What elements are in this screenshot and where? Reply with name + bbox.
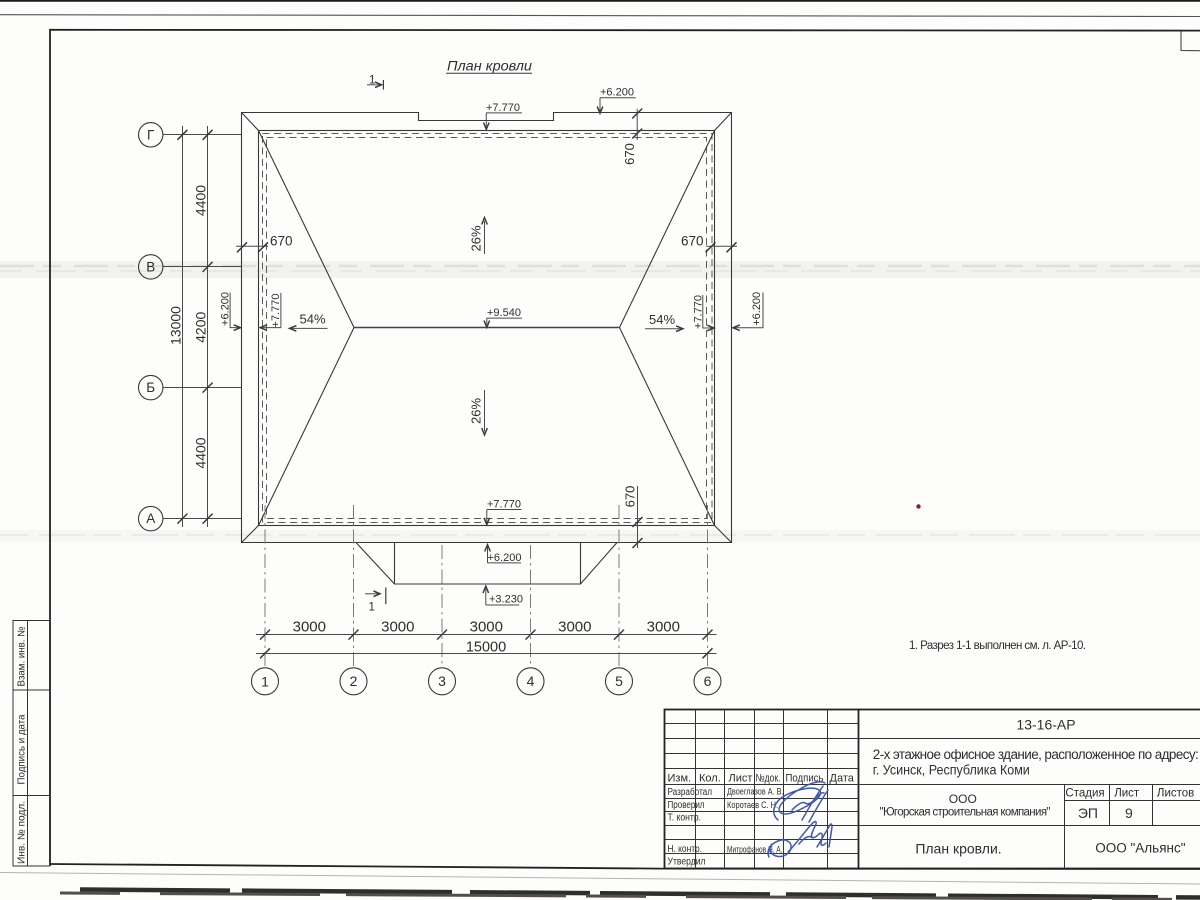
svg-text:4: 4 [527, 673, 535, 689]
svg-text:670: 670 [270, 234, 293, 249]
svg-text:1: 1 [261, 673, 269, 689]
svg-text:Взам. инв. №: Взам. инв. № [16, 626, 27, 686]
svg-text:+6.200: +6.200 [488, 552, 522, 564]
svg-text:А: А [146, 511, 155, 526]
svg-text:Двоеглазов А. В.: Двоеглазов А. В. [727, 787, 784, 798]
svg-text:13-16-АР: 13-16-АР [1016, 717, 1075, 733]
svg-text:2: 2 [350, 673, 358, 689]
svg-text:План кровли: План кровли [447, 59, 533, 74]
svg-text:Подпись и дата: Подпись и дата [16, 714, 27, 784]
svg-text:Т. контр.: Т. контр. [668, 813, 702, 824]
svg-text:Лист: Лист [1114, 788, 1140, 800]
svg-text:3000: 3000 [558, 618, 591, 635]
svg-text:9: 9 [1125, 805, 1133, 821]
svg-text:4400: 4400 [193, 437, 209, 468]
svg-text:ООО "Альянс": ООО "Альянс" [1095, 841, 1185, 856]
svg-text:3000: 3000 [381, 618, 414, 635]
svg-text:Б: Б [146, 380, 155, 395]
svg-text:Коротаев С. Н.: Коротаев С. Н. [727, 800, 778, 811]
svg-text:+6.200: +6.200 [751, 292, 763, 326]
svg-text:ООО: ООО [949, 792, 977, 806]
svg-text:54%: 54% [649, 312, 675, 327]
svg-text:г. Усинск, Республика Коми: г. Усинск, Республика Коми [873, 763, 1030, 778]
svg-text:2-х этажное офисное здание, ра: 2-х этажное офисное здание, расположенно… [873, 747, 1199, 762]
svg-text:+7.770: +7.770 [487, 499, 521, 511]
svg-text:+3.230: +3.230 [489, 594, 523, 606]
svg-text:В: В [146, 259, 155, 274]
svg-text:Стадия: Стадия [1065, 788, 1104, 800]
svg-text:Утвердил: Утвердил [668, 856, 706, 867]
svg-text:План кровли.: План кровли. [915, 841, 1001, 857]
svg-text:Кол.: Кол. [699, 773, 721, 785]
svg-text:15000: 15000 [466, 640, 506, 656]
svg-text:3000: 3000 [470, 618, 503, 635]
svg-text:Листов: Листов [1157, 788, 1194, 800]
svg-text:"Югорская строительная компани: "Югорская строительная компания" [880, 807, 1051, 819]
svg-text:1: 1 [369, 602, 375, 614]
svg-text:54%: 54% [300, 312, 326, 327]
svg-text:Г: Г [147, 128, 155, 143]
svg-text:5: 5 [615, 673, 623, 689]
svg-text:Митрофанов Я. А.: Митрофанов Я. А. [727, 845, 783, 856]
svg-text:26%: 26% [469, 225, 484, 251]
svg-text:+7.770: +7.770 [486, 102, 520, 114]
svg-text:26%: 26% [469, 398, 484, 424]
svg-text:Разработал: Разработал [668, 787, 713, 798]
svg-text:Подпись: Подпись [786, 773, 824, 785]
svg-text:670: 670 [622, 143, 637, 165]
svg-text:3000: 3000 [293, 618, 326, 635]
svg-text:4400: 4400 [193, 185, 209, 216]
svg-text:ЭП: ЭП [1078, 805, 1098, 821]
svg-text:Н. контр.: Н. контр. [668, 844, 703, 855]
svg-text:Изм.: Изм. [668, 773, 692, 785]
svg-text:Проверил: Проверил [668, 800, 705, 811]
svg-text:670: 670 [681, 234, 704, 249]
svg-text:670: 670 [623, 486, 638, 508]
svg-text:6: 6 [704, 673, 712, 689]
svg-text:+9.540: +9.540 [487, 307, 521, 319]
svg-text:№док.: №док. [756, 773, 781, 785]
svg-text:1. Разрез 1-1 выполнен см. л.: 1. Разрез 1-1 выполнен см. л. АР-10. [909, 640, 1086, 652]
svg-text:+7.770: +7.770 [270, 294, 282, 328]
svg-text:Инв. № подл.: Инв. № подл. [16, 801, 27, 864]
svg-text:Дата: Дата [830, 773, 855, 785]
svg-text:3000: 3000 [647, 618, 680, 635]
svg-text:Лист: Лист [729, 773, 753, 785]
svg-text:3: 3 [438, 673, 446, 689]
svg-text:4200: 4200 [193, 312, 209, 343]
svg-text:+6.200: +6.200 [600, 87, 634, 99]
svg-text:13000: 13000 [168, 306, 184, 345]
